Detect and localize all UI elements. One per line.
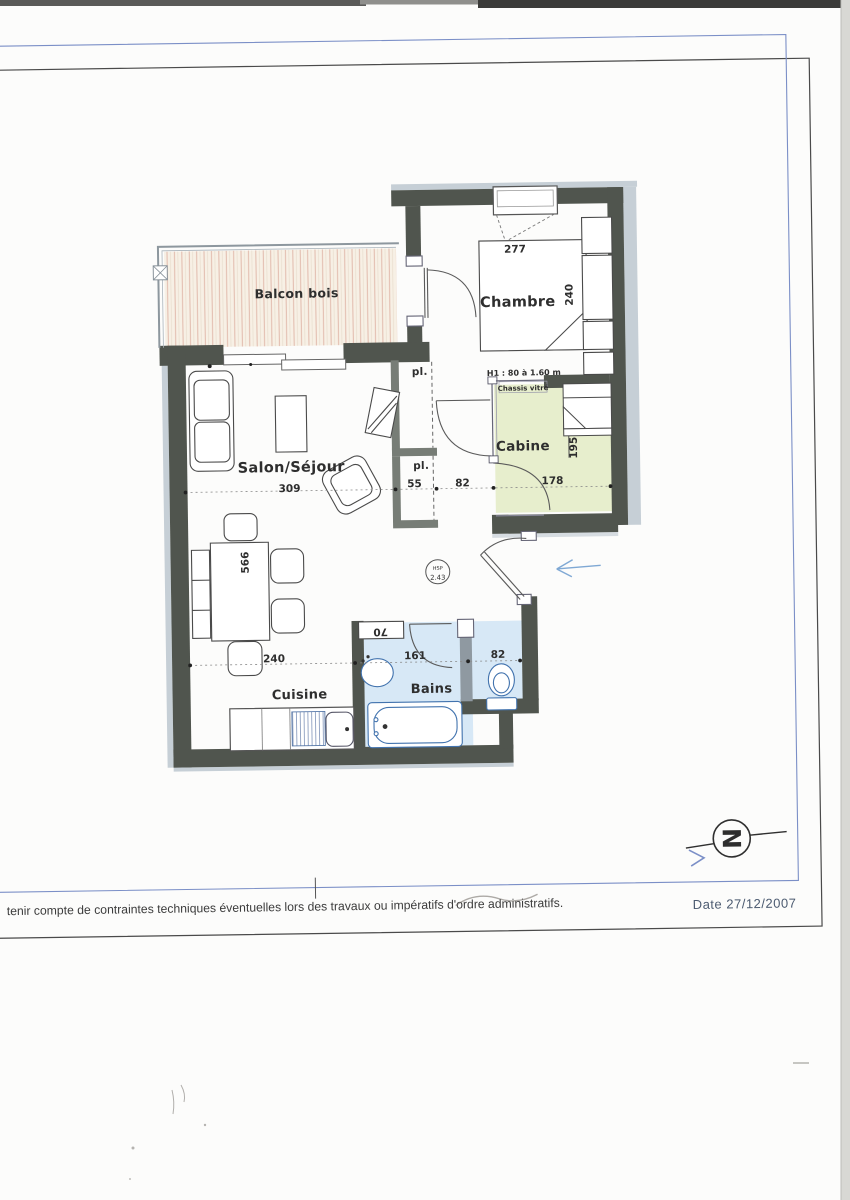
- coffee-table: [275, 396, 307, 452]
- page-content: HSP 2.43 Balcon bois Chambre Salon/Séjou…: [0, 34, 822, 939]
- north-letter: N: [717, 828, 746, 849]
- chair: [271, 599, 305, 633]
- chair: [228, 641, 263, 676]
- blue-pen-mark: [689, 850, 704, 866]
- dim-kitchen-width: 240: [263, 653, 285, 665]
- dim-hall-width: 82: [455, 477, 470, 489]
- label-closet-top: pl.: [412, 366, 428, 378]
- dim-wc-width: 82: [491, 649, 506, 661]
- bathtub: [368, 701, 463, 747]
- chair: [270, 549, 304, 583]
- kitchen-counter: [230, 707, 355, 751]
- label-balcony: Balcon bois: [254, 285, 338, 301]
- closet-openings: [432, 362, 434, 520]
- dim-closet-width: 55: [407, 478, 422, 490]
- label-bath: Bains: [411, 682, 453, 698]
- note-height: H1 : 80 à 1.60 m: [487, 368, 561, 378]
- title-block: tenir compte de contraintes techniques é…: [6, 870, 796, 922]
- entrance-arrow: [557, 559, 601, 577]
- dining-set: [191, 513, 305, 677]
- pencil-marks: [129, 1085, 206, 1180]
- dim-bath-width: 161: [404, 650, 426, 662]
- ceiling-value: 2.43: [430, 574, 445, 582]
- bath-partition: [460, 637, 473, 701]
- floor-plan: HSP 2.43 Balcon bois Chambre Salon/Séjou…: [152, 181, 646, 772]
- bay-window: [208, 353, 346, 371]
- label-closet-bottom: pl.: [413, 460, 429, 472]
- label-kitchen: Cuisine: [272, 687, 328, 703]
- ceiling-height-symbol: HSP 2.43: [426, 560, 450, 584]
- dim-bedroom-width: 277: [504, 243, 526, 255]
- north-symbol: N: [685, 819, 787, 866]
- living-furniture: [189, 368, 402, 520]
- scanned-floor-plan-page: HSP 2.43 Balcon bois Chambre Salon/Séjou…: [0, 0, 850, 1200]
- scan-artifacts: [0, 0, 850, 1200]
- date-text: Date 27/12/2007: [693, 895, 797, 912]
- bench: [191, 550, 210, 638]
- dim-bedroom-depth: 240: [564, 284, 576, 306]
- closet-walls: [391, 360, 438, 529]
- label-cabin: Cabine: [496, 438, 550, 455]
- ceiling-label: HSP: [433, 566, 443, 572]
- note-glazing: Chassis vitré: [498, 384, 549, 393]
- dim-living-length: 566: [239, 552, 251, 574]
- kitchen-sink: [326, 712, 354, 746]
- dim-living-width: 309: [278, 483, 300, 495]
- sink-drainer: [292, 711, 326, 745]
- floor-plan-drawing: HSP 2.43 Balcon bois Chambre Salon/Séjou…: [0, 0, 850, 1200]
- dim-cabin-width: 178: [541, 475, 563, 487]
- sofa: [189, 371, 234, 472]
- label-living: Salon/Séjour: [238, 459, 346, 477]
- bedroom-window: [493, 186, 558, 240]
- label-bedroom: Chambre: [480, 294, 556, 311]
- dim-cabin-depth: 195: [568, 437, 580, 459]
- toilet: [486, 664, 517, 710]
- chair: [224, 513, 257, 540]
- disclaimer-text: tenir compte de contraintes techniques é…: [7, 896, 564, 918]
- dim-appliance: 70: [373, 625, 388, 637]
